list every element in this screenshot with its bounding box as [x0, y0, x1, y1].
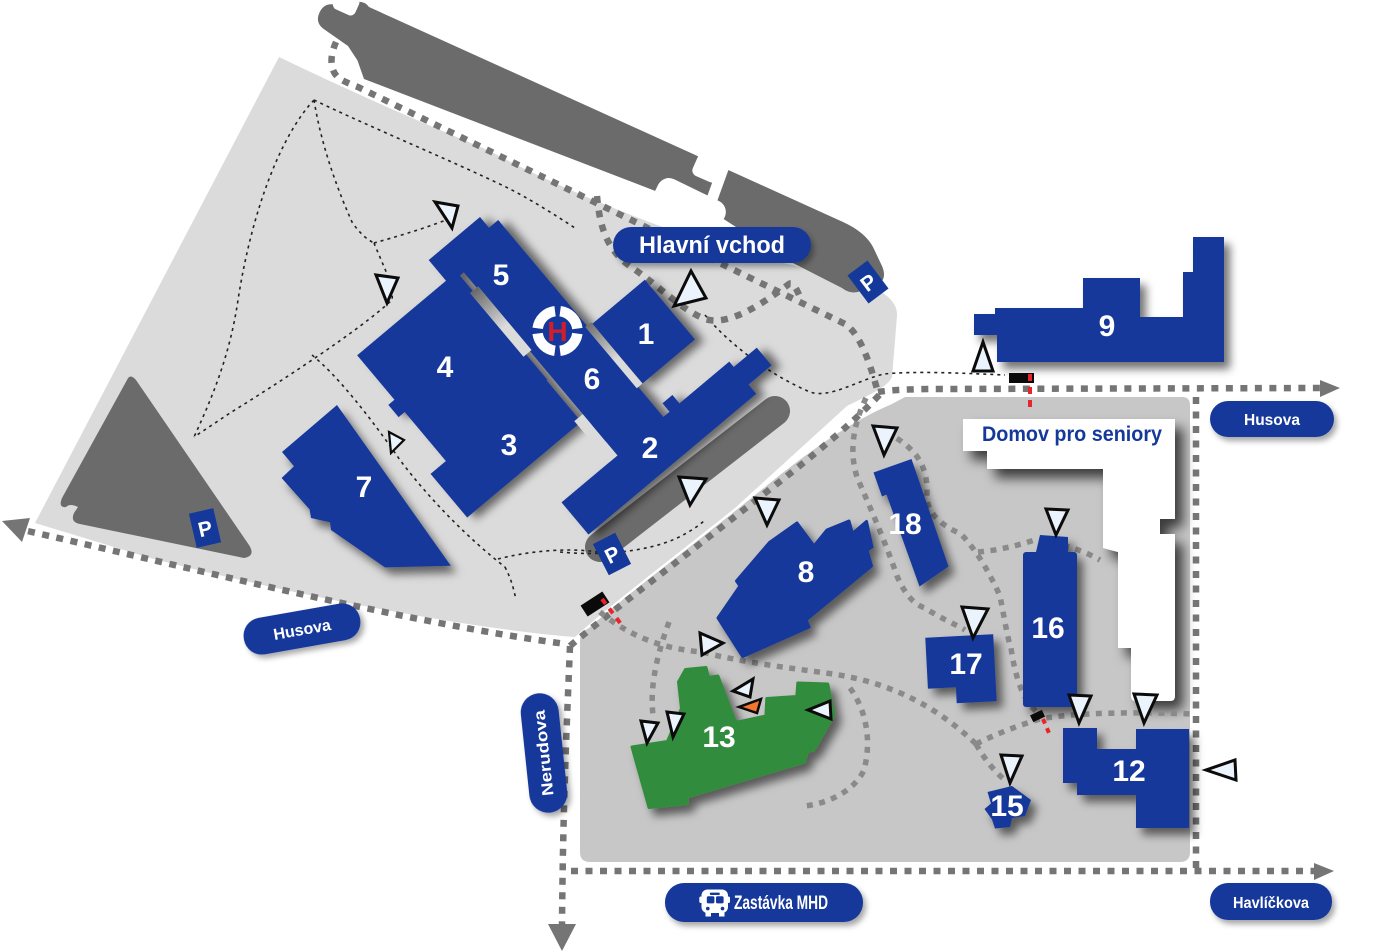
svg-text:Husova: Husova [1244, 412, 1300, 429]
svg-text:1: 1 [638, 318, 655, 351]
svg-text:9: 9 [1099, 310, 1116, 343]
svg-text:15: 15 [990, 790, 1023, 823]
svg-text:2: 2 [642, 432, 659, 465]
svg-text:8: 8 [798, 556, 815, 589]
svg-text:17: 17 [949, 648, 982, 681]
svg-text:5: 5 [493, 259, 510, 292]
svg-text:12: 12 [1112, 755, 1145, 788]
svg-text:13: 13 [702, 721, 735, 754]
svg-text:6: 6 [584, 363, 601, 396]
svg-text:Hlavní vchod: Hlavní vchod [639, 232, 785, 259]
svg-text:4: 4 [437, 351, 454, 384]
svg-text:18: 18 [888, 508, 921, 541]
svg-text:Domov pro seniory: Domov pro seniory [982, 423, 1162, 446]
svg-text:H: H [547, 316, 567, 347]
svg-text:7: 7 [356, 471, 373, 504]
svg-text:3: 3 [501, 429, 518, 462]
svg-text:Zastávka MHD: Zastávka MHD [734, 893, 828, 914]
svg-text:16: 16 [1031, 612, 1064, 645]
svg-text:Havlíčkova: Havlíčkova [1233, 895, 1309, 912]
